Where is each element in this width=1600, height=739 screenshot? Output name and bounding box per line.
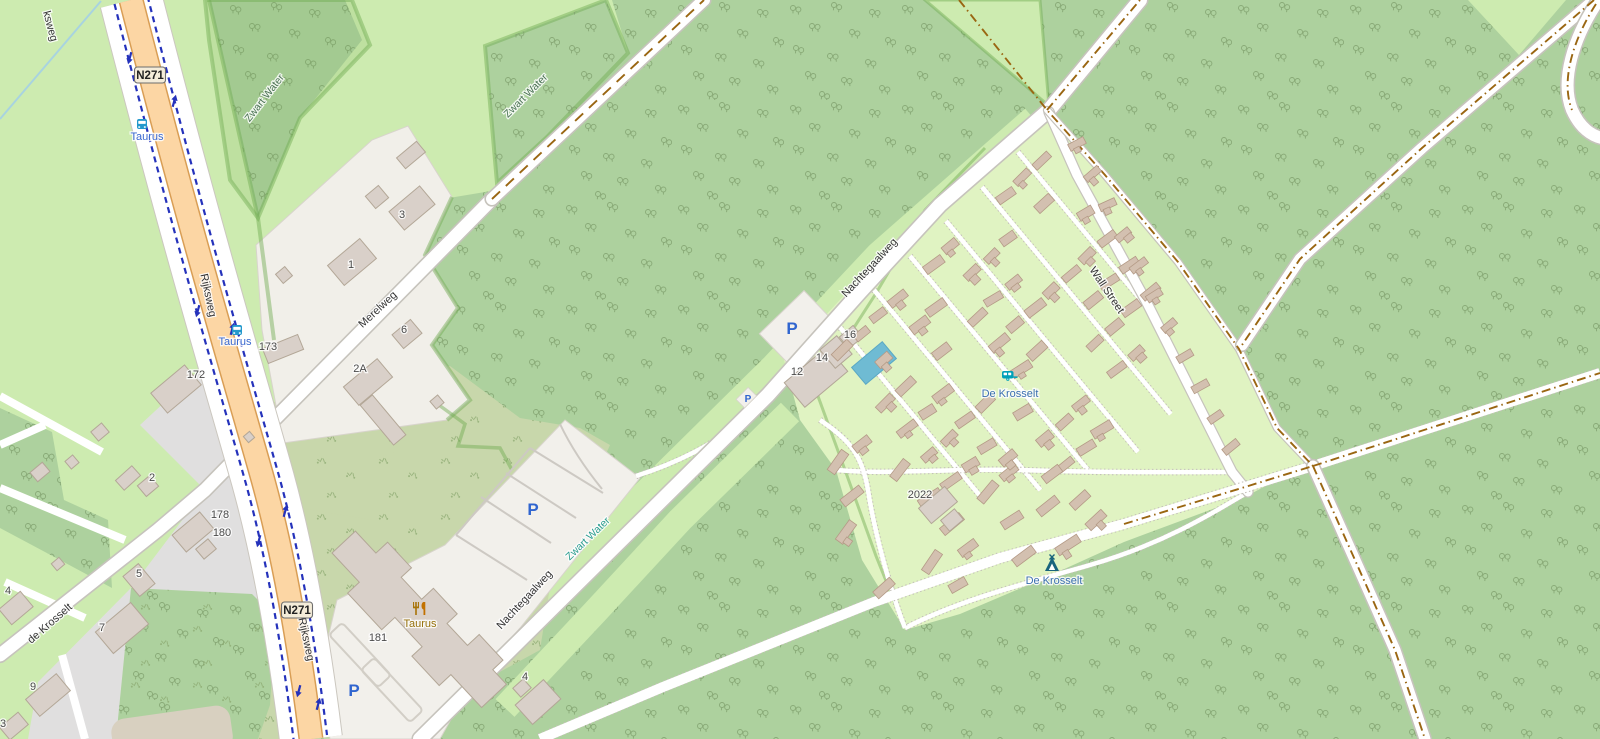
svg-text:N271: N271 xyxy=(283,605,311,617)
svg-text:Taurus: Taurus xyxy=(130,131,164,143)
svg-text:9: 9 xyxy=(30,681,36,693)
svg-text:Taurus: Taurus xyxy=(218,336,252,348)
svg-text:De Krosselt: De Krosselt xyxy=(982,388,1039,400)
svg-text:16: 16 xyxy=(844,329,856,341)
svg-text:P: P xyxy=(527,500,538,519)
svg-text:14: 14 xyxy=(816,352,828,364)
svg-text:4: 4 xyxy=(5,585,11,597)
svg-text:178: 178 xyxy=(211,509,229,521)
svg-text:3: 3 xyxy=(399,209,405,221)
svg-text:173: 173 xyxy=(259,341,277,353)
svg-text:5: 5 xyxy=(136,568,142,580)
svg-text:12: 12 xyxy=(791,366,803,378)
svg-text:172: 172 xyxy=(187,369,205,381)
svg-text:1: 1 xyxy=(348,259,354,271)
svg-text:6: 6 xyxy=(401,324,407,336)
svg-text:4: 4 xyxy=(522,671,528,683)
svg-text:2A: 2A xyxy=(353,363,367,375)
svg-text:180: 180 xyxy=(213,527,231,539)
svg-text:De Krosselt: De Krosselt xyxy=(1026,575,1083,587)
svg-text:P: P xyxy=(745,394,752,405)
svg-text:7: 7 xyxy=(99,622,105,634)
svg-text:P: P xyxy=(348,681,359,700)
svg-text:N271: N271 xyxy=(136,70,164,82)
svg-text:2022: 2022 xyxy=(908,489,932,501)
svg-text:2: 2 xyxy=(149,472,155,484)
svg-text:181: 181 xyxy=(369,632,387,644)
svg-text:3: 3 xyxy=(0,718,6,730)
svg-text:Taurus: Taurus xyxy=(403,618,437,630)
svg-text:P: P xyxy=(786,319,797,338)
